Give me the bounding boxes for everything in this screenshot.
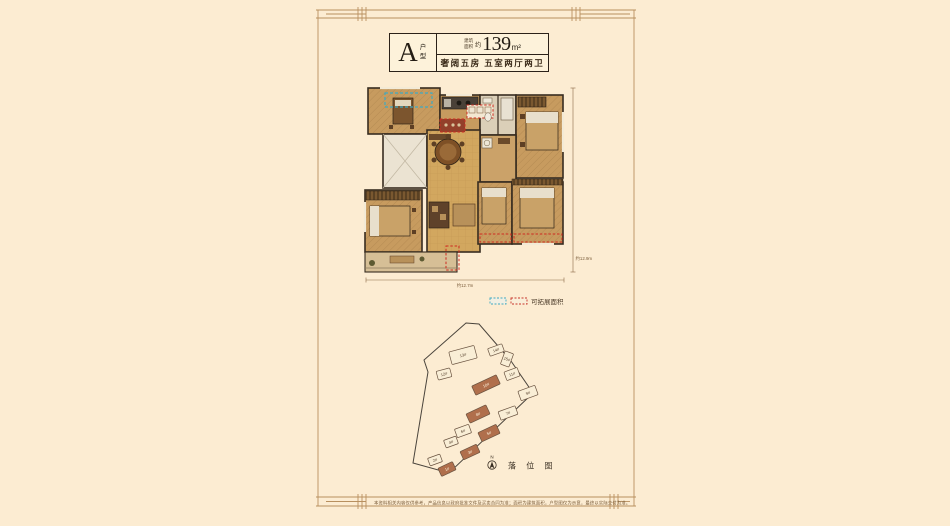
unit-area-label: 建筑面积 <box>464 38 474 50</box>
siteplan-building: 7# <box>498 406 518 421</box>
north-arrow-icon: N <box>488 455 496 470</box>
site-plan-title: 落 位 图 <box>508 461 556 471</box>
siteplan-building: 1# <box>438 462 456 477</box>
siteplan-building: 5# <box>478 424 500 442</box>
siteplan-building: 2# <box>428 454 443 466</box>
siteplan-building: 13# <box>449 345 477 364</box>
siteplan-building: 8# <box>466 405 490 423</box>
legend-swatch-red <box>511 298 527 304</box>
siteplan-building: 12# <box>436 368 452 380</box>
legend-swatch-teal <box>490 298 506 304</box>
legend-label: 可拓展面积 <box>531 297 564 306</box>
unit-area-approx: 约 <box>475 40 481 49</box>
siteplan-building: 3# <box>460 444 480 460</box>
siteplan-building: 11# <box>504 367 520 380</box>
unit-area-value: 139 <box>482 34 511 54</box>
unit-type-letter: A <box>398 39 418 66</box>
unit-card: A 户型 建筑面积 约 139 m² 奢阔五房 五室两厅两卫 <box>389 33 549 72</box>
site-plan: 1#2#3#4#5#6#7#8#9#10#11#12#13#14#15# N 落… <box>398 318 588 478</box>
floor-plan: 约12.7m 约12.9m <box>360 82 600 294</box>
dimension-height-label: 约12.9m <box>576 255 593 262</box>
unit-area-unit: m² <box>512 43 521 52</box>
unit-area-row: 建筑面积 约 139 m² <box>437 34 548 55</box>
siteplan-building: 15# <box>500 351 513 367</box>
unit-info-cell: 建筑面积 约 139 m² 奢阔五房 五室两厅两卫 <box>437 34 548 71</box>
legend: 可拓展面积 <box>490 297 564 306</box>
siteplan-building: 9# <box>518 385 538 401</box>
north-label: N <box>490 455 493 460</box>
site-buildings: 1#2#3#4#5#6#7#8#9#10#11#12#13#14#15# <box>428 344 539 477</box>
unit-type-cell: A 户型 <box>390 34 437 71</box>
unit-type-suffix: 户型 <box>420 44 428 60</box>
dimension-width-label: 约12.7m <box>457 282 474 289</box>
siteplan-building: 14# <box>488 344 505 357</box>
siteplan-building: 10# <box>472 375 501 395</box>
siteplan-building: 4# <box>444 436 459 448</box>
unit-tagline: 奢阔五房 五室两厅两卫 <box>437 55 548 71</box>
floorplan-sheet: 可拓展面积 本资料相关内容仅供参考，产品信息以政府批准文件及买卖合同为准；面积为… <box>0 0 950 526</box>
disclaimer-text: 本资料相关内容仅供参考，产品信息以政府批准文件及买卖合同为准；面积为建筑面积，户… <box>374 500 630 507</box>
siteplan-building: 6# <box>454 424 471 438</box>
